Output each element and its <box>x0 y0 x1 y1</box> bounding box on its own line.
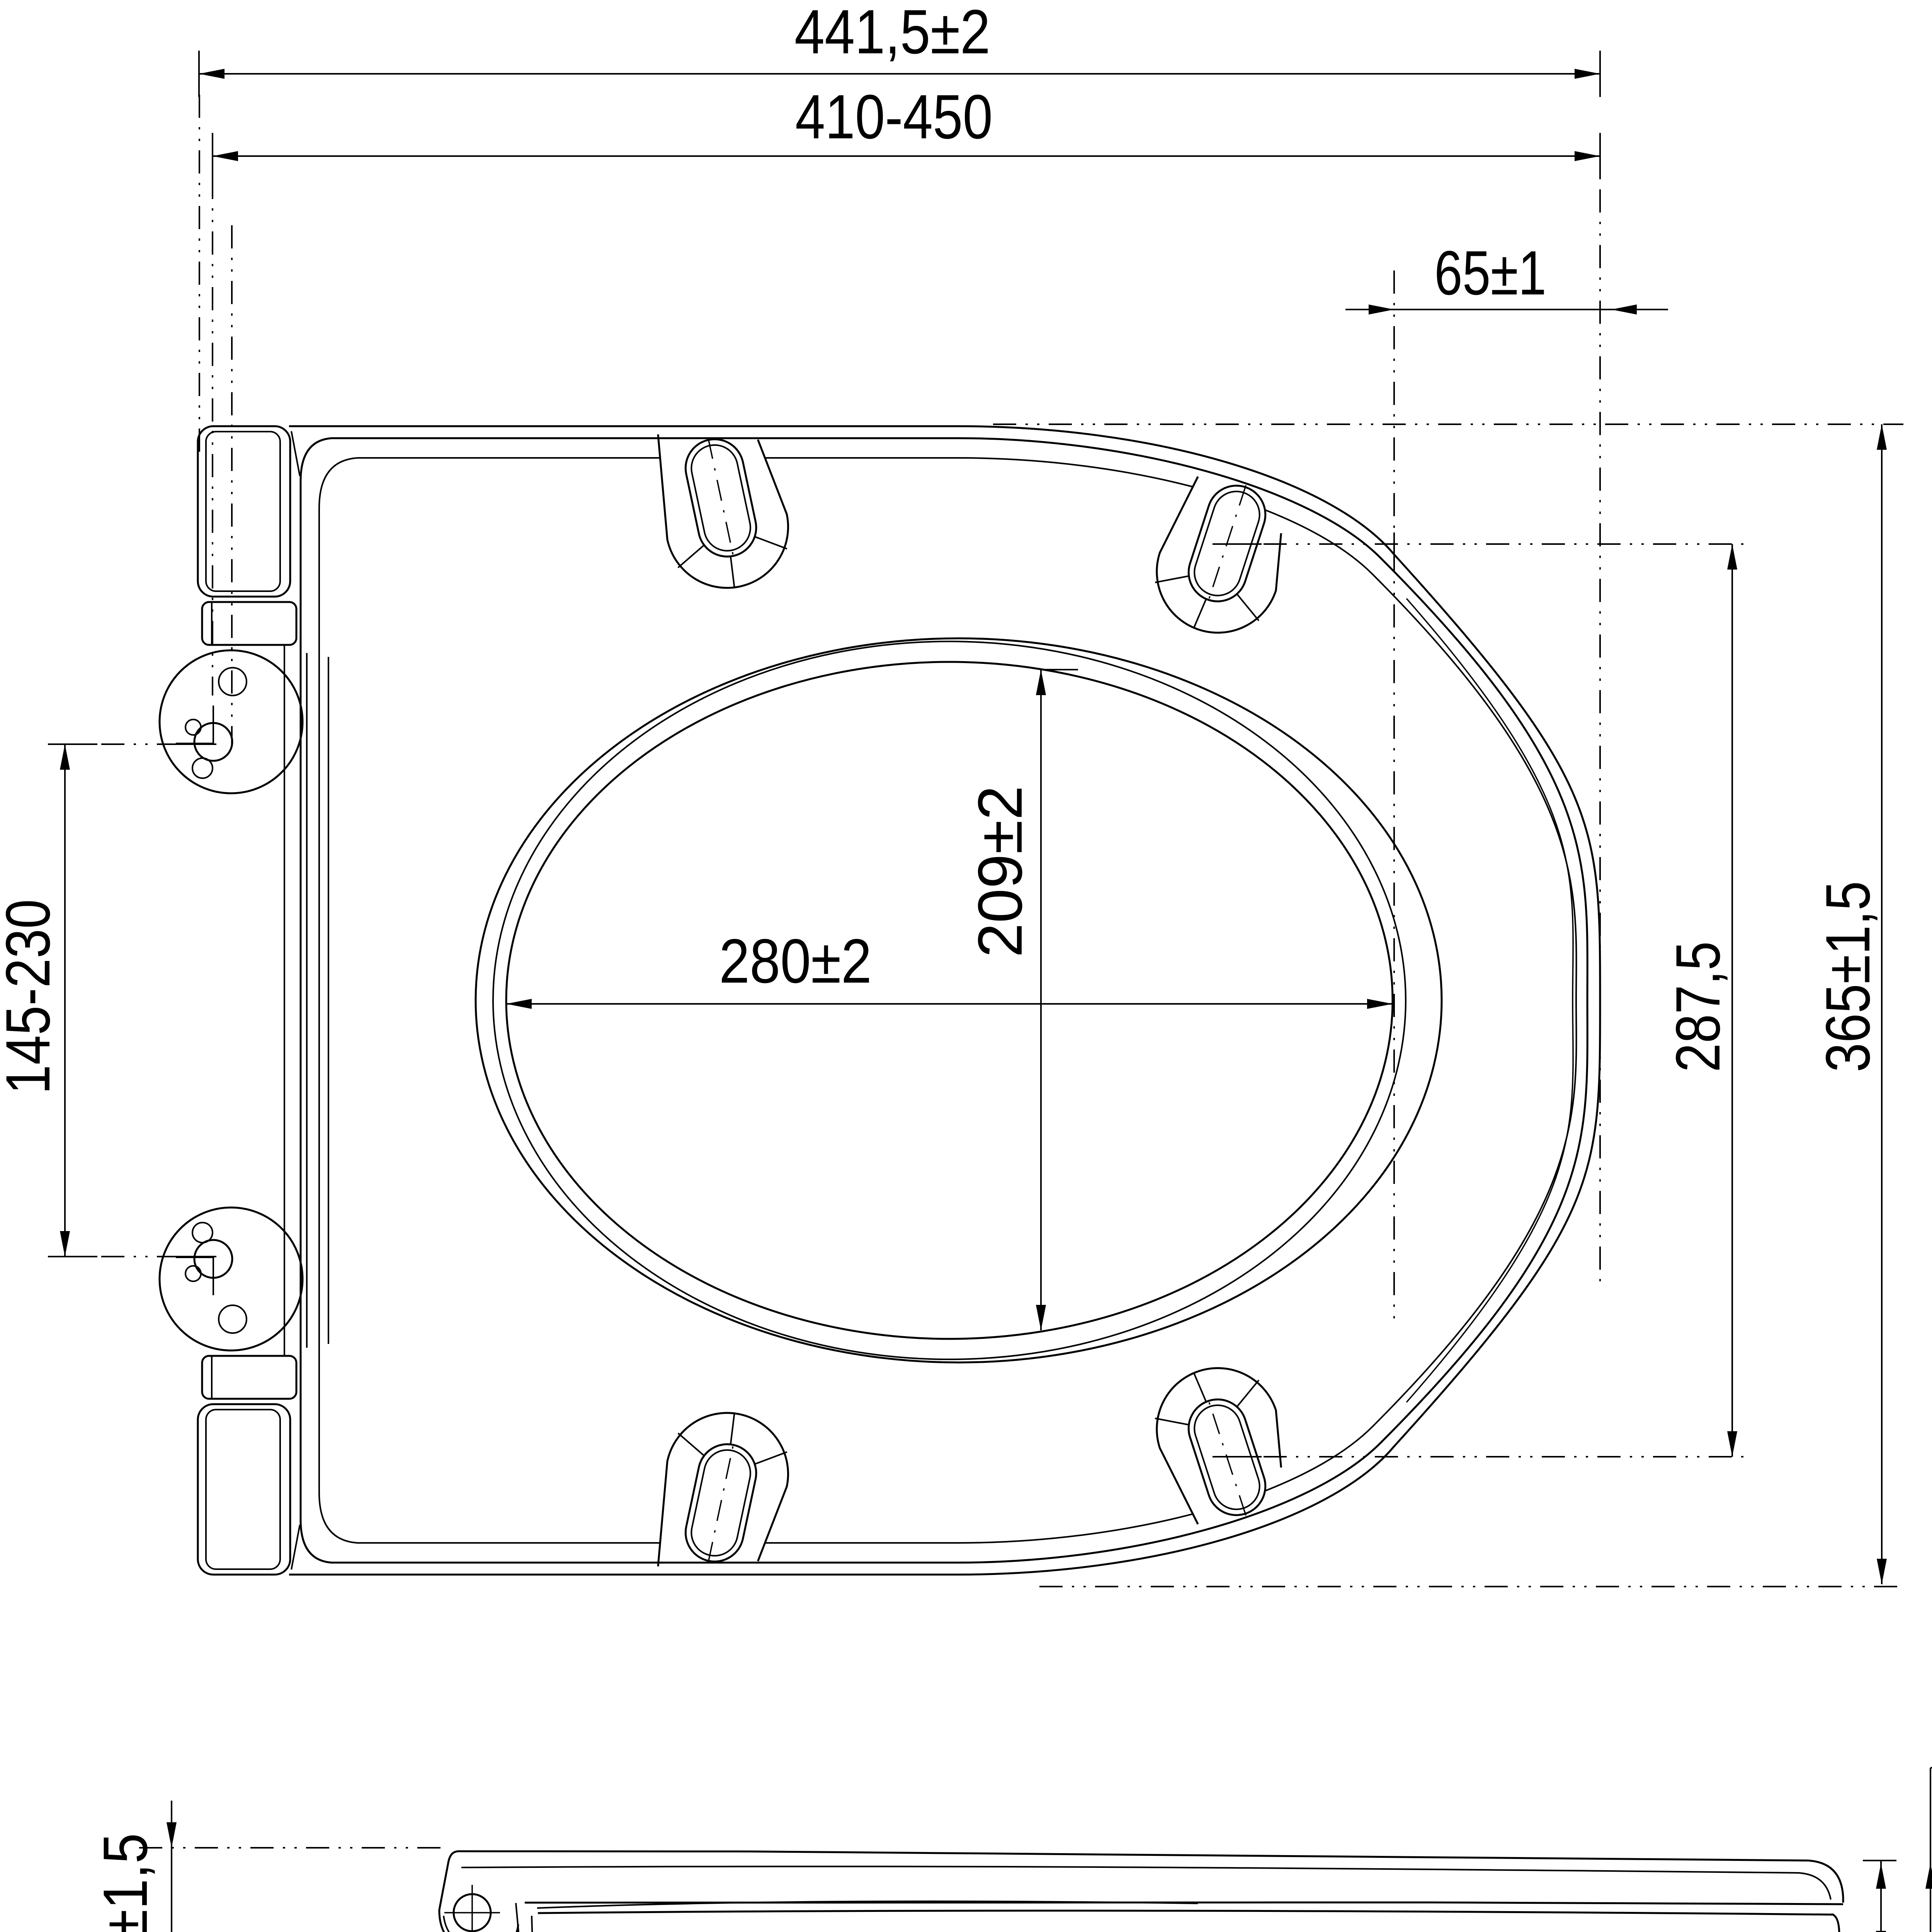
svg-text:280±2: 280±2 <box>719 926 872 996</box>
svg-text:441,5±2: 441,5±2 <box>794 0 990 67</box>
svg-text:410-450: 410-450 <box>795 82 993 152</box>
svg-text:365±1,5: 365±1,5 <box>1813 881 1883 1072</box>
svg-text:287,5: 287,5 <box>1663 941 1733 1072</box>
svg-text:209±2: 209±2 <box>965 786 1035 957</box>
svg-text:145-230: 145-230 <box>0 899 63 1094</box>
svg-text:65±1: 65±1 <box>1434 238 1546 308</box>
